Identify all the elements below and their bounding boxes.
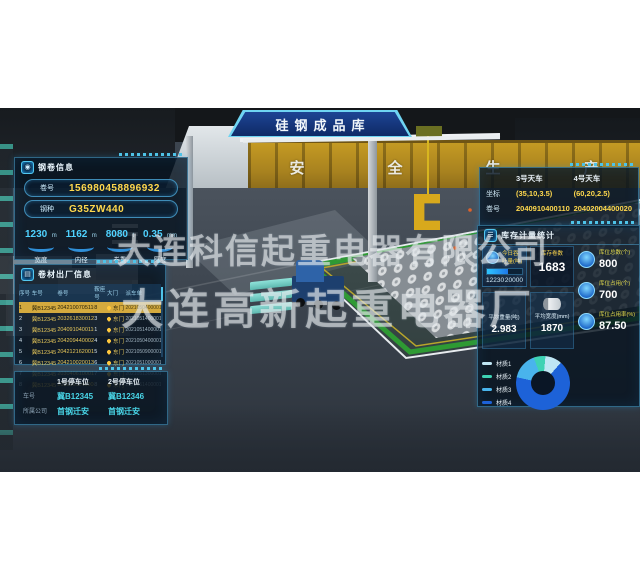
company-value: 首钢迁安: [57, 406, 108, 417]
cell-coil: 2040910400110: [57, 324, 94, 335]
throughput-tile: 今日吞吐量(吨) 12230 20000: [482, 246, 527, 287]
inventory-stats-panel: ☰ 库存计量统计 今日吞吐量(吨) 12230 20000 库存卷数: [477, 225, 640, 407]
shipment-panel: ▤ 卷材出厂信息 序号车号卷号鞍座号大门派车单 1冀B1234520421007…: [14, 264, 166, 365]
plate-value: 冀B12345: [57, 391, 108, 402]
scrollbar-thumb[interactable]: [161, 287, 163, 301]
stat-text: 库位占用(个)700: [599, 279, 630, 301]
cell-truck: 冀B12345: [32, 302, 58, 313]
legend-item[interactable]: 材质1: [482, 359, 516, 368]
stat-arc: [68, 242, 94, 252]
plate-value: 冀B12346: [108, 391, 159, 402]
donut-hole: [531, 371, 555, 395]
cell-coil: 2042094400020: [57, 335, 94, 346]
location-pin-icon: [107, 360, 112, 366]
legend-item[interactable]: 材质2: [482, 372, 516, 381]
legend-item[interactable]: 材质4: [482, 398, 516, 407]
truck-wheel: [314, 300, 323, 309]
coil-stat: 1230 m宽度: [25, 224, 57, 264]
spacer: [23, 377, 57, 387]
cell-seat: 8: [94, 302, 107, 313]
cell-truck: 冀B12345: [32, 357, 58, 368]
cell-gate: 东门: [107, 335, 125, 346]
crane-coil-number: 20402004400020: [574, 204, 632, 214]
table-row[interactable]: 1冀B1234520421007051108东门2021050400001: [19, 302, 161, 313]
location-pin-icon: [107, 316, 112, 322]
cell-dispatch: 2021050400001: [125, 335, 161, 346]
coil-stat-value: 0.35 mm: [143, 224, 177, 242]
cell-gate: 东门: [107, 302, 125, 313]
cell-no: 1: [19, 302, 32, 313]
stat-arc: [28, 242, 54, 252]
cell-dispatch: 2021051400001: [125, 324, 161, 335]
inventory-icon: ☰: [484, 229, 497, 242]
cell-gate: 东门: [107, 346, 125, 357]
coil-fields: 卷号156980458896932钢种G35ZW440: [15, 179, 187, 218]
cell-no: 2: [19, 313, 32, 324]
stat-text: 库位总数(个)800: [599, 248, 630, 270]
table-column-header: 序号: [19, 284, 32, 302]
cell-dispatch: 2021050900001: [125, 346, 161, 357]
cell-no: 5: [19, 346, 32, 357]
inventory-stat: 库位占用(个)700: [578, 279, 636, 301]
cell-truck: 冀B12345: [32, 346, 58, 357]
parking-panel: 1号停车位2号停车位车号冀B12345冀B12346所属公司首钢迁安首钢迁安: [14, 371, 168, 425]
crane-coil-number: 2040910400110: [516, 204, 574, 214]
cell-seat: 1: [94, 324, 107, 335]
cell-seat: 3: [94, 313, 107, 324]
coil-field-value: G35ZW440: [69, 204, 124, 215]
coil-stat: 1162 m内径: [66, 224, 97, 264]
company-value: 首钢迁安: [108, 406, 159, 417]
cell-seat: 5: [94, 346, 107, 357]
coil-field: 钢种G35ZW440: [24, 200, 178, 218]
avg-width-tile: 平均宽度(mm) 1870: [530, 292, 574, 349]
app-root: 安全生产: [0, 0, 640, 580]
parking-spot-title: 1号停车位: [57, 377, 108, 387]
coil-count-label: 库存卷数: [531, 249, 573, 257]
truck-wheel: [332, 301, 341, 310]
stat-label: 库位占用(个): [599, 279, 630, 287]
legend-swatch: [482, 362, 492, 365]
legend-swatch: [482, 375, 492, 378]
coil-stat: 8080 t卷重: [106, 224, 134, 264]
cell-coil: 2032618300120: [57, 313, 94, 324]
cell-coil: 2042100705110: [57, 302, 94, 313]
stat-value: 87.50: [599, 320, 635, 332]
inventory-stat: 库位总数(个)800: [578, 248, 636, 270]
stat-text: 库位占用率(%)87.50: [599, 310, 635, 332]
legend-swatch: [482, 401, 492, 404]
coil-stat-label: 宽度: [25, 254, 57, 264]
cell-coil: 2042100200130: [57, 357, 94, 368]
cell-truck: 冀B12345: [32, 324, 58, 335]
crane-status-panel: 3号天车4号天车坐标(35,10,3.5)(60,20,2.5)卷号204091…: [479, 167, 639, 228]
cell-gate: 东门: [107, 313, 125, 324]
coord-label: 坐标: [486, 189, 516, 199]
shipment-icon: ▤: [21, 268, 34, 281]
avg-weight-label: 平均重量(吨): [483, 313, 525, 321]
legend-label: 材质1: [496, 359, 511, 368]
table-row[interactable]: 2冀B1234520326183001203东门2021051400001: [19, 313, 161, 324]
saddle-racks: [250, 278, 292, 322]
table-row[interactable]: 4冀B1234520420944000204东门2021050400001: [19, 335, 161, 346]
avg-weight-value: 2.983: [483, 324, 525, 335]
cell-no: 4: [19, 335, 32, 346]
coil-label: 卷号: [486, 204, 516, 214]
crane-coordinates: (60,20,2.5): [574, 189, 632, 199]
stat-value: 800: [599, 258, 630, 270]
stat-badge-icon: [578, 313, 595, 330]
crane-name: 3号天车: [516, 173, 574, 184]
cell-gate: 东门: [107, 324, 125, 335]
company-label: 所属公司: [23, 406, 57, 417]
throughput-progressbar: [486, 268, 523, 275]
table-column-header: 卷号: [57, 284, 94, 302]
cell-dispatch: 2021051400001: [125, 313, 161, 324]
coil-side-icon: [543, 298, 561, 310]
stat-arc: [107, 242, 133, 252]
throughput-icon: [486, 251, 499, 264]
shipment-title: 卷材出厂信息: [38, 269, 92, 280]
cell-no: 3: [19, 324, 32, 335]
stat-badge-icon: [578, 251, 595, 268]
coil-stats: 1230 m宽度1162 m内径8080 t卷重0.35 mm厚度: [15, 218, 187, 264]
coil-field-value: 156980458896932: [69, 183, 160, 194]
coil-stat-value: 1162 m: [66, 224, 97, 242]
avg-width-label: 平均宽度(mm): [531, 312, 573, 320]
inventory-title: 库存计量统计: [501, 230, 555, 241]
legend-item[interactable]: 材质3: [482, 385, 516, 394]
table-scrollbar[interactable]: [161, 287, 163, 357]
coil-info-panel: ◉ 钢卷信息 卷号156980458896932钢种G35ZW440 1230 …: [14, 157, 188, 260]
table-column-header: 车号: [32, 284, 58, 302]
throughput-current: 12230: [486, 277, 504, 284]
truck-cab: [296, 260, 324, 282]
coil-info-icon: ◉: [21, 161, 34, 174]
location-pin-icon: [107, 338, 112, 344]
crane-grid: 3号天车4号天车坐标(35,10,3.5)(60,20,2.5)卷号204091…: [480, 168, 638, 214]
warehouse-title-banner: 硅钢成品库: [228, 110, 412, 137]
coil-info-title: 钢卷信息: [38, 162, 74, 173]
material-legend: 材质1材质2材质3材质4: [482, 355, 516, 411]
coil-stat-label: 内径: [66, 254, 97, 264]
legend-label: 材质4: [496, 398, 511, 407]
cell-coil: 2042121620010: [57, 346, 94, 357]
table-row[interactable]: 3冀B1234520409104001101东门2021051400001: [19, 324, 161, 335]
stat-value: 700: [599, 289, 630, 301]
stat-badge-icon: [578, 282, 595, 299]
inventory-stat: 库位占用率(%)87.50: [578, 310, 636, 332]
pillar: [368, 130, 377, 282]
table-column-header: 大门: [107, 284, 125, 302]
avg-weight-tile: 平均重量(吨) 2.983: [482, 292, 526, 349]
coil-stat-value: 8080 t: [106, 224, 134, 242]
coil-field: 卷号156980458896932: [24, 179, 178, 197]
legend-label: 材质3: [496, 385, 511, 394]
coil-stat-value: 1230 m: [25, 224, 57, 242]
coil-count-value: 1683: [531, 260, 573, 274]
crane-cable: [427, 136, 429, 196]
cell-truck: 冀B12345: [32, 335, 58, 346]
cell-seat: 4: [94, 335, 107, 346]
throughput-label: 今日吞吐量(吨): [502, 249, 523, 265]
plate-label: 车号: [23, 391, 57, 402]
table-column-header: 派车单: [125, 284, 161, 302]
stat-label: 库位占用率(%): [599, 310, 635, 318]
stat-label: 库位总数(个): [599, 248, 630, 256]
coil-field-label: 卷号: [25, 183, 69, 193]
location-pin-icon: [107, 327, 112, 333]
parking-spot-title: 2号停车位: [108, 377, 159, 387]
stat-arc: [147, 242, 173, 252]
inventory-right-column: 库位总数(个)800库位占用(个)700库位占用率(%)87.50: [578, 248, 636, 341]
coil-face-icon: [497, 296, 512, 311]
table-row[interactable]: 5冀B1234520421216200105东门2021050900001: [19, 346, 161, 357]
legend-swatch: [482, 388, 492, 391]
cell-dispatch: 2021050400001: [125, 302, 161, 313]
cell-truck: 冀B12345: [32, 313, 58, 324]
crane-coordinates: (35,10,3.5): [516, 189, 574, 199]
table-column-header: 鞍座号: [94, 284, 107, 302]
throughput-max: 20000: [505, 277, 523, 284]
warehouse-title: 硅钢成品库: [269, 115, 370, 134]
cell-no: 6: [19, 357, 32, 368]
location-pin-icon: [107, 305, 112, 311]
coil-count-tile: 库存卷数 1683: [530, 246, 574, 287]
material-donut-chart[interactable]: [516, 356, 570, 410]
parking-grid: 1号停车位2号停车位车号冀B12345冀B12346所属公司首钢迁安首钢迁安: [15, 372, 167, 417]
truck-wheel: [296, 298, 305, 307]
crane-name: 4号天车: [574, 173, 632, 184]
coil-field-label: 钢种: [25, 204, 69, 214]
spacer: [486, 173, 516, 184]
avg-width-value: 1870: [531, 323, 573, 334]
inventory-left-column: 今日吞吐量(吨) 12230 20000 库存卷数 1683 平均重量(吨): [482, 246, 574, 411]
location-pin-icon: [107, 349, 112, 355]
legend-label: 材质2: [496, 372, 511, 381]
coil-stat: 0.35 mm厚度: [143, 224, 177, 264]
